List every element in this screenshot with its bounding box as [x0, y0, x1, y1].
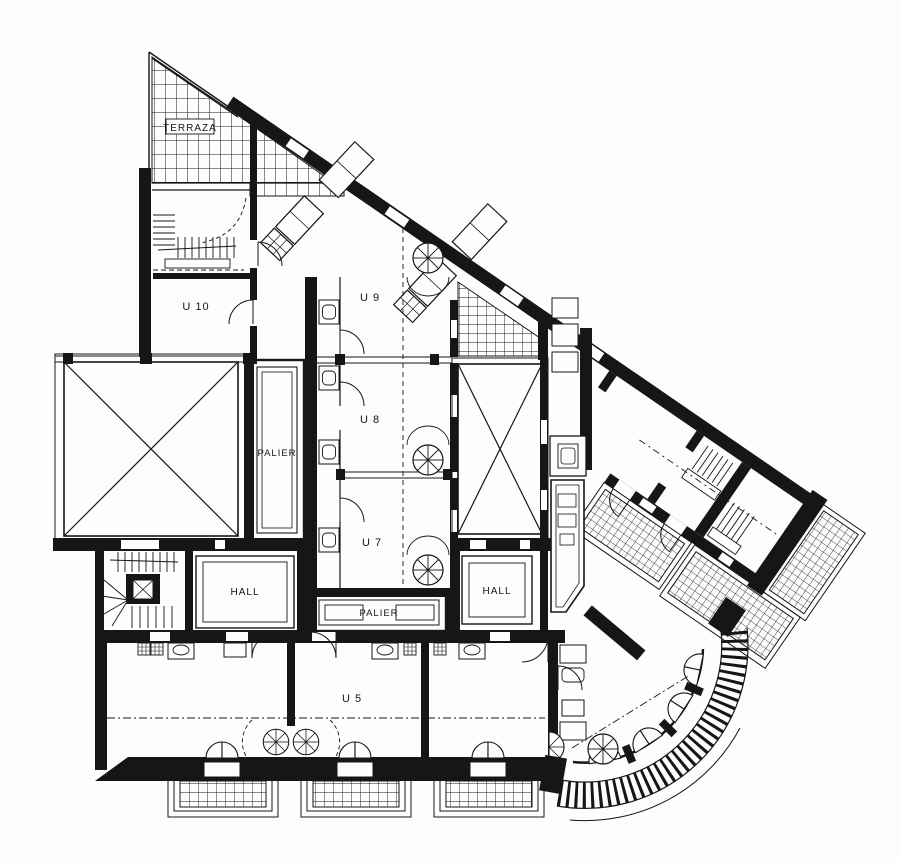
balcony-2 [301, 781, 411, 817]
spiral-stair-icon [263, 729, 289, 755]
spiral-stair-icon [413, 445, 443, 475]
bottom-balconies [168, 781, 544, 817]
label-u10: U 10 [182, 301, 209, 313]
hall-left: HALL [185, 551, 305, 633]
french-window-icon [472, 742, 504, 758]
french-window-icon [206, 742, 238, 758]
label-hall-right: HALL [482, 586, 511, 597]
fixture-icon [319, 366, 339, 390]
fixture-icon [319, 528, 339, 552]
spiral-stair-icon [588, 734, 618, 764]
french-window-icon [662, 687, 693, 723]
balcony-3 [434, 781, 544, 817]
french-window-icon [627, 722, 663, 753]
palier-left-shaft: PALIER [244, 356, 304, 546]
label-u7: U 7 [362, 537, 382, 549]
label-u8: U 8 [360, 414, 380, 426]
terrace-area: TERRAZA [149, 52, 344, 196]
label-palier-left: PALIER [257, 448, 296, 459]
balcony-1 [168, 781, 278, 817]
checker-fixture-icon [404, 643, 416, 655]
fixture-icon [319, 300, 339, 324]
sink-icon [168, 643, 194, 659]
bottom-rooms: U 5 [95, 630, 565, 781]
stairwell-left [95, 548, 178, 636]
label-terraza: TERRAZA [163, 123, 217, 134]
window-wall-row [55, 353, 257, 364]
floor-plan-drawing: TERRAZA [0, 0, 900, 861]
sink-icon [372, 643, 398, 659]
spiral-stair-icon [293, 729, 319, 755]
french-window-icon [339, 742, 371, 758]
checker-fixture-icon [434, 643, 446, 655]
french-window-icon [681, 651, 703, 686]
spiral-stair-icon [413, 243, 443, 273]
sink-icon [459, 643, 485, 659]
stair-room [153, 198, 246, 268]
hall-right: HALL [452, 551, 548, 631]
checker-fixture-icon [138, 643, 150, 655]
label-hall-left: HALL [230, 587, 259, 598]
lightwell-right [452, 282, 548, 540]
spiral-stair-icon [413, 555, 443, 585]
checker-fixture-icon [151, 643, 163, 655]
lightwell-left [55, 354, 245, 544]
label-u9: U 9 [360, 292, 380, 304]
floor-plan-page: TERRAZA [0, 0, 900, 861]
label-u5: U 5 [342, 693, 362, 705]
label-palier-bottom: PALIER [359, 608, 398, 619]
fixture-icon [319, 440, 339, 464]
